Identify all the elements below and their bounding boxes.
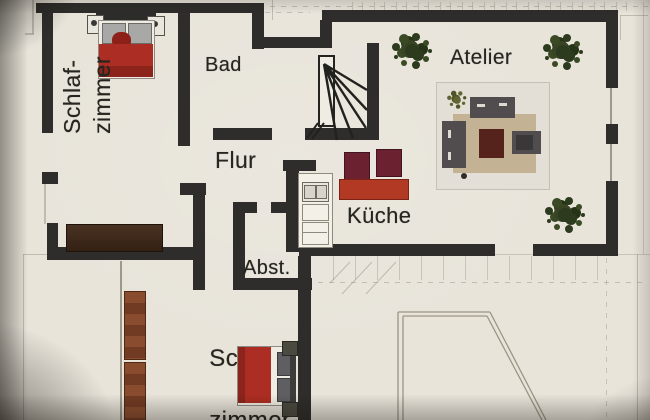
coffee-table [479, 129, 504, 158]
room-label-text: Schlaf-zimmer [57, 56, 117, 134]
wall-schlafzimmer2-left-stub [47, 223, 58, 249]
pencil-line [606, 258, 607, 420]
wall-schlafzimmer2-right [298, 256, 311, 420]
appliance-line [302, 232, 327, 233]
plant-icon [556, 45, 570, 59]
sofa-cushion-mark [448, 130, 451, 138]
wall-atelier-right-1 [606, 10, 618, 88]
wardrobe [124, 362, 146, 420]
room-label-flur: Flur [215, 147, 256, 174]
pencil-line [120, 261, 122, 420]
sofa-left [442, 121, 466, 168]
wall-stair-right [367, 43, 379, 140]
sofa-cushion-mark [499, 103, 507, 106]
floor-dot [461, 173, 467, 179]
pencil-rafters [333, 256, 599, 280]
sofa-cushion-mark [448, 152, 451, 160]
dining-chair [344, 152, 370, 180]
wardrobe [124, 291, 146, 360]
sofa-top [470, 97, 515, 118]
label-line: zimmer [209, 407, 290, 420]
bed2-blanket-edge [238, 347, 245, 403]
appliance [302, 222, 329, 245]
room-label-atelier: Atelier [450, 46, 512, 70]
wall-stair-bottom [305, 128, 379, 140]
floor-plan-photo: Schlaf-zimmer Bad Flur Atelier Küche Abs… [0, 0, 650, 420]
pencil-line [643, 2, 644, 254]
stair-landing [318, 55, 335, 127]
label-line: Schlaf- [59, 60, 85, 134]
nightstand-knob [91, 20, 97, 26]
sofa-cushion-mark [477, 104, 485, 107]
dining-chair [376, 149, 402, 177]
pencil-line [32, 0, 34, 34]
pencil-line [272, 0, 273, 20]
window-line [610, 144, 612, 181]
pencil-line [620, 15, 621, 40]
pencil-line [44, 184, 46, 224]
wall-flur-jamb [180, 183, 206, 195]
room-label-bad: Bad [205, 54, 242, 77]
room-label-schlafzimmer-1: Schlaf-zimmer [39, 66, 135, 124]
pencil-line [25, 33, 34, 35]
plant-icon [558, 208, 572, 222]
wall-bad-bottom [213, 128, 272, 140]
plant-icon [405, 44, 419, 58]
bed2-headboard [290, 350, 296, 404]
sink-bowl [304, 185, 316, 199]
wall-atelier-right-pier [606, 124, 618, 144]
pencil-line [637, 254, 638, 420]
wall-flur-vert [193, 195, 205, 290]
bed2-nightstand [282, 341, 298, 356]
window-line [610, 88, 612, 124]
sideboard [66, 224, 163, 252]
room-label-kueche: Küche [347, 203, 411, 229]
armchair-seat [516, 135, 533, 150]
pencil-line [318, 282, 648, 283]
bed2-nightstand [282, 402, 298, 417]
wall-stair-stub [320, 20, 332, 48]
kitchen-counter [298, 173, 333, 248]
pencil-line [23, 254, 24, 420]
wall-schlafzimmer-bad-divider [178, 13, 190, 146]
wall-door-jamb [42, 172, 58, 184]
wall-kueche-bottom-right [533, 244, 618, 256]
label-line: zimmer [89, 56, 115, 134]
wall-abst-jamb-right [271, 202, 286, 213]
wall-abst-jamb-left [233, 202, 257, 213]
wall-kueche-top-stub [283, 160, 316, 171]
dining-table [339, 179, 409, 200]
appliance [302, 204, 329, 221]
room-label-abst: Abst. [243, 257, 291, 280]
small-plant-icon [453, 96, 461, 104]
wall-atelier-top [322, 10, 618, 22]
bed-pillow [128, 23, 152, 44]
pencil-line [23, 254, 48, 255]
sink-bowl [316, 185, 327, 199]
